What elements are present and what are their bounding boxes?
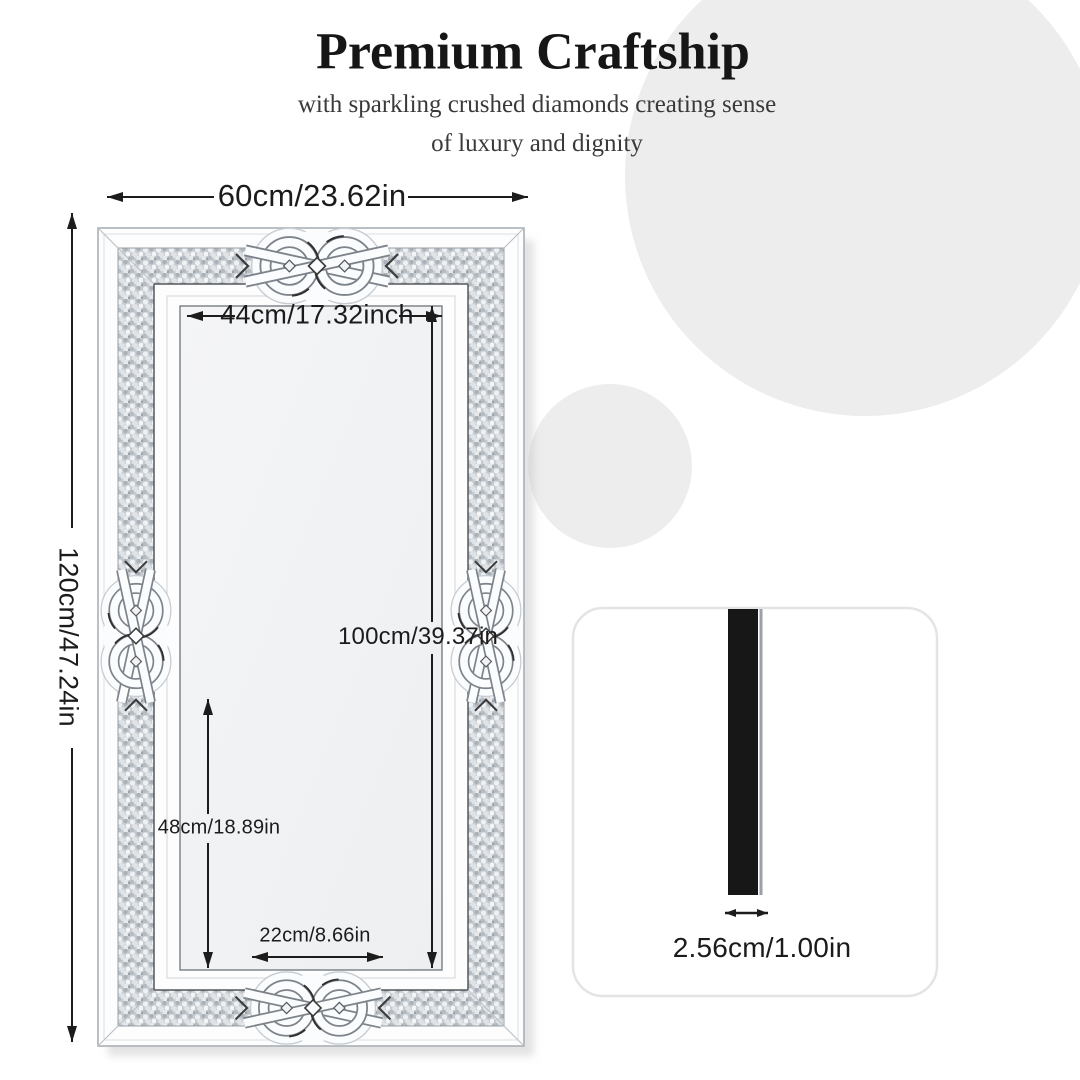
inner-height-label: 100cm/39.37in: [338, 623, 498, 651]
bottom-width-label: 22cm/8.66in: [259, 925, 370, 948]
side-view-bar: [728, 609, 758, 895]
page-subtitle-line1: with sparkling crushed diamonds creating…: [298, 91, 776, 119]
outer-height-label: 120cm/47.24in: [53, 547, 84, 727]
page-subtitle-line2: of luxury and dignity: [431, 130, 643, 158]
thickness-label: 2.56cm/1.00in: [673, 932, 852, 964]
lower-height-label: 48cm/18.89in: [158, 817, 280, 840]
outer-width-label: 60cm/23.62in: [218, 178, 407, 214]
diagram-graphics: [0, 0, 1080, 1080]
inner-width-label: 44cm/17.32inch: [220, 300, 413, 331]
product-dimension-infographic: Premium Craftship with sparkling crushed…: [0, 0, 1080, 1080]
background-circle-small: [528, 384, 692, 548]
side-view-bar-edge: [760, 609, 763, 895]
page-title: Premium Craftship: [316, 23, 750, 82]
